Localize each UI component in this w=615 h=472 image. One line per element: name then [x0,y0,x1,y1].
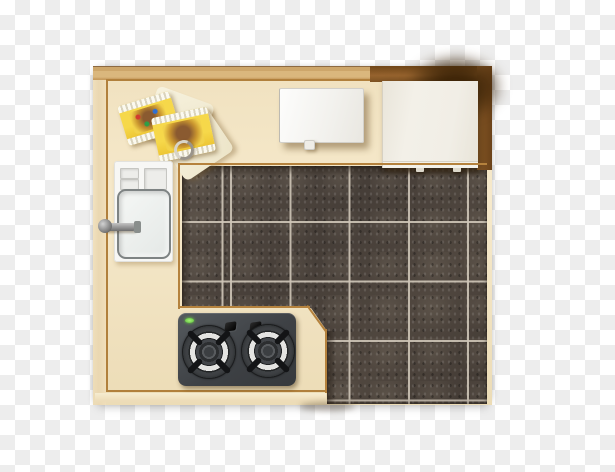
cabinet-foot [416,166,424,172]
cutting-board [279,88,364,143]
burner-grate [187,358,204,375]
gas-stove [178,313,296,386]
burner-grate [274,329,291,346]
cabinet-foot [453,166,461,172]
burner-grate [246,357,263,374]
burner-grate [215,358,232,375]
counter-left-edge [93,66,106,405]
trim-line-tile-left [178,163,180,309]
burner-left [182,325,236,379]
counter-shadow-corner [327,331,336,404]
sink-unit [114,161,173,262]
counter-front-face [95,393,326,405]
kitchen-image [93,66,492,405]
faucet-collar [134,221,141,233]
trim-line-tile-top [178,163,487,165]
cabinet-top [382,81,478,168]
floor-drop-shadow [300,402,355,411]
faucet-knob [98,219,112,233]
transparency-checkerboard-background: { "scene": { "kind": "stock-image-previe… [0,0,615,472]
trim-line-counter-edge [178,306,310,308]
burner-grate [187,330,204,347]
drainboard-tray [144,168,167,190]
burner-grate [246,329,263,346]
burner-right [241,324,295,378]
trim-line-counter-right [325,329,327,393]
stove-led-indicator [185,318,194,323]
drainboard-tray [120,168,139,179]
burner-grate [215,330,232,347]
cutting-board-handle [304,140,315,150]
burner-grate [274,357,291,374]
counter-shadow-left [182,166,190,308]
